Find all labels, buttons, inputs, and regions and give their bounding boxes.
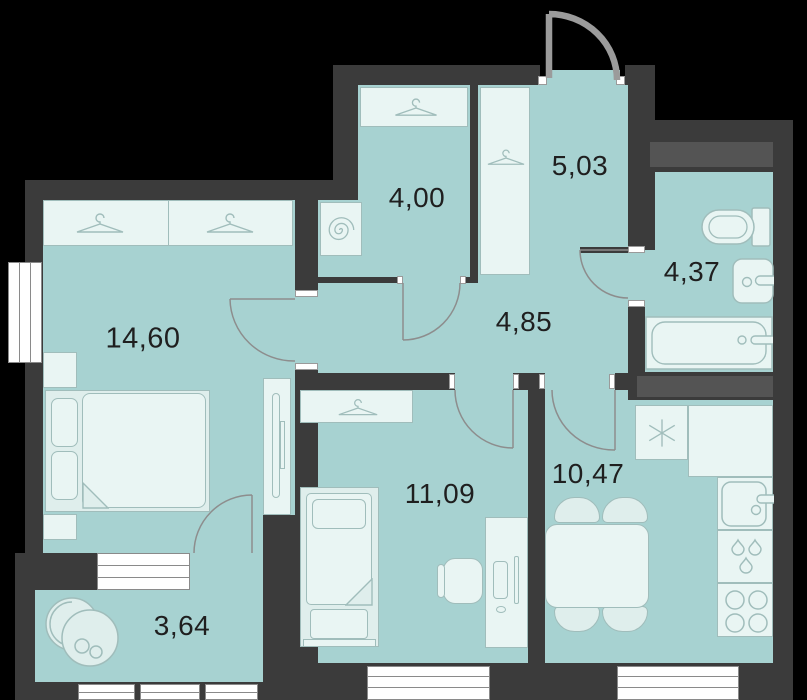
door-kitchen <box>552 390 615 450</box>
area-label-child: 11,09 <box>405 478 476 510</box>
area-label-dressing: 4,00 <box>389 182 446 214</box>
door-entrance <box>549 14 617 80</box>
area-label-bedroom: 14,60 <box>105 323 180 356</box>
door-bedroom <box>230 299 295 361</box>
area-label-balcony: 3,64 <box>154 610 211 642</box>
floor-plan: 14,60 4,00 5,03 4,85 4,37 11,09 10,47 3,… <box>0 0 807 700</box>
door-dressing <box>403 283 460 340</box>
area-label-kitchen: 10,47 <box>552 458 625 490</box>
area-label-entry: 5,03 <box>552 150 609 182</box>
door-bathroom <box>580 250 628 298</box>
door-child <box>455 390 513 448</box>
area-label-bathroom: 4,37 <box>664 256 721 288</box>
door-balcony <box>194 495 252 553</box>
area-label-corridor: 4,85 <box>496 306 553 338</box>
